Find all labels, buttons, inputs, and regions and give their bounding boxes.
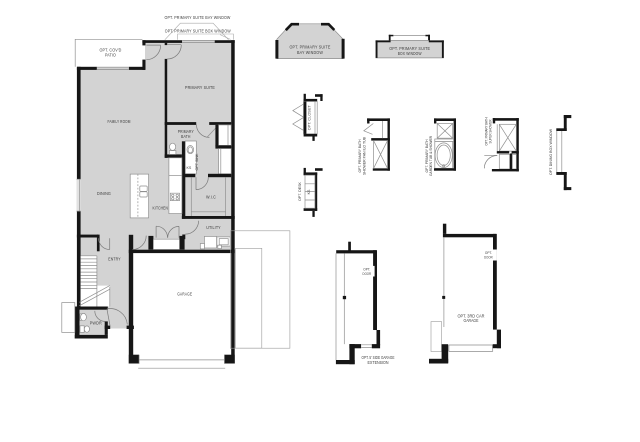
svg-text:PATIO: PATIO [105,52,116,57]
svg-text:PWDR: PWDR [90,320,102,325]
svg-text:UTILITY: UTILITY [206,225,221,230]
svg-text:OPT. DESK: OPT. DESK [297,182,302,201]
svg-text:OPT. CLOSET: OPT. CLOSET [307,105,312,131]
svg-text:GARAGE: GARAGE [464,318,479,323]
svg-text:BOX WINDOW: BOX WINDOW [398,51,422,56]
svg-text:ENTRY: ENTRY [108,256,120,261]
svg-text:FAMILY ROOM: FAMILY ROOM [108,119,131,124]
svg-text:GARDEN TUB & SHOWER: GARDEN TUB & SHOWER [428,136,433,176]
svg-text:DINING: DINING [97,191,111,196]
svg-text:OPT. PRIMARY SUITE BAY WINDOW: OPT. PRIMARY SUITE BAY WINDOW [165,15,232,20]
svg-text:EXTENSION: EXTENSION [368,360,389,365]
svg-text:DOOR: DOOR [363,271,372,276]
svg-text:PRIMARY SUITE: PRIMARY SUITE [185,85,215,90]
svg-text:GARAGE: GARAGE [177,291,192,296]
svg-text:BATH: BATH [181,134,191,139]
svg-text:DOOR: DOOR [484,255,493,260]
svg-text:KS: KS [187,166,192,170]
svg-text:BAY WINDOW: BAY WINDOW [297,50,323,55]
svg-text:SHOWER PAN ILO TUB: SHOWER PAN ILO TUB [361,137,366,175]
svg-text:OPT SINK: OPT SINK [194,153,199,170]
svg-text:OPT. DINING BOX WINDOW: OPT. DINING BOX WINDOW [548,129,553,175]
svg-text:KS: KS [307,189,311,194]
svg-text:KITCHEN: KITCHEN [153,205,169,210]
svg-text:SUPER SHOWER: SUPER SHOWER [488,119,493,143]
svg-text:W.I.C: W.I.C [206,195,216,200]
